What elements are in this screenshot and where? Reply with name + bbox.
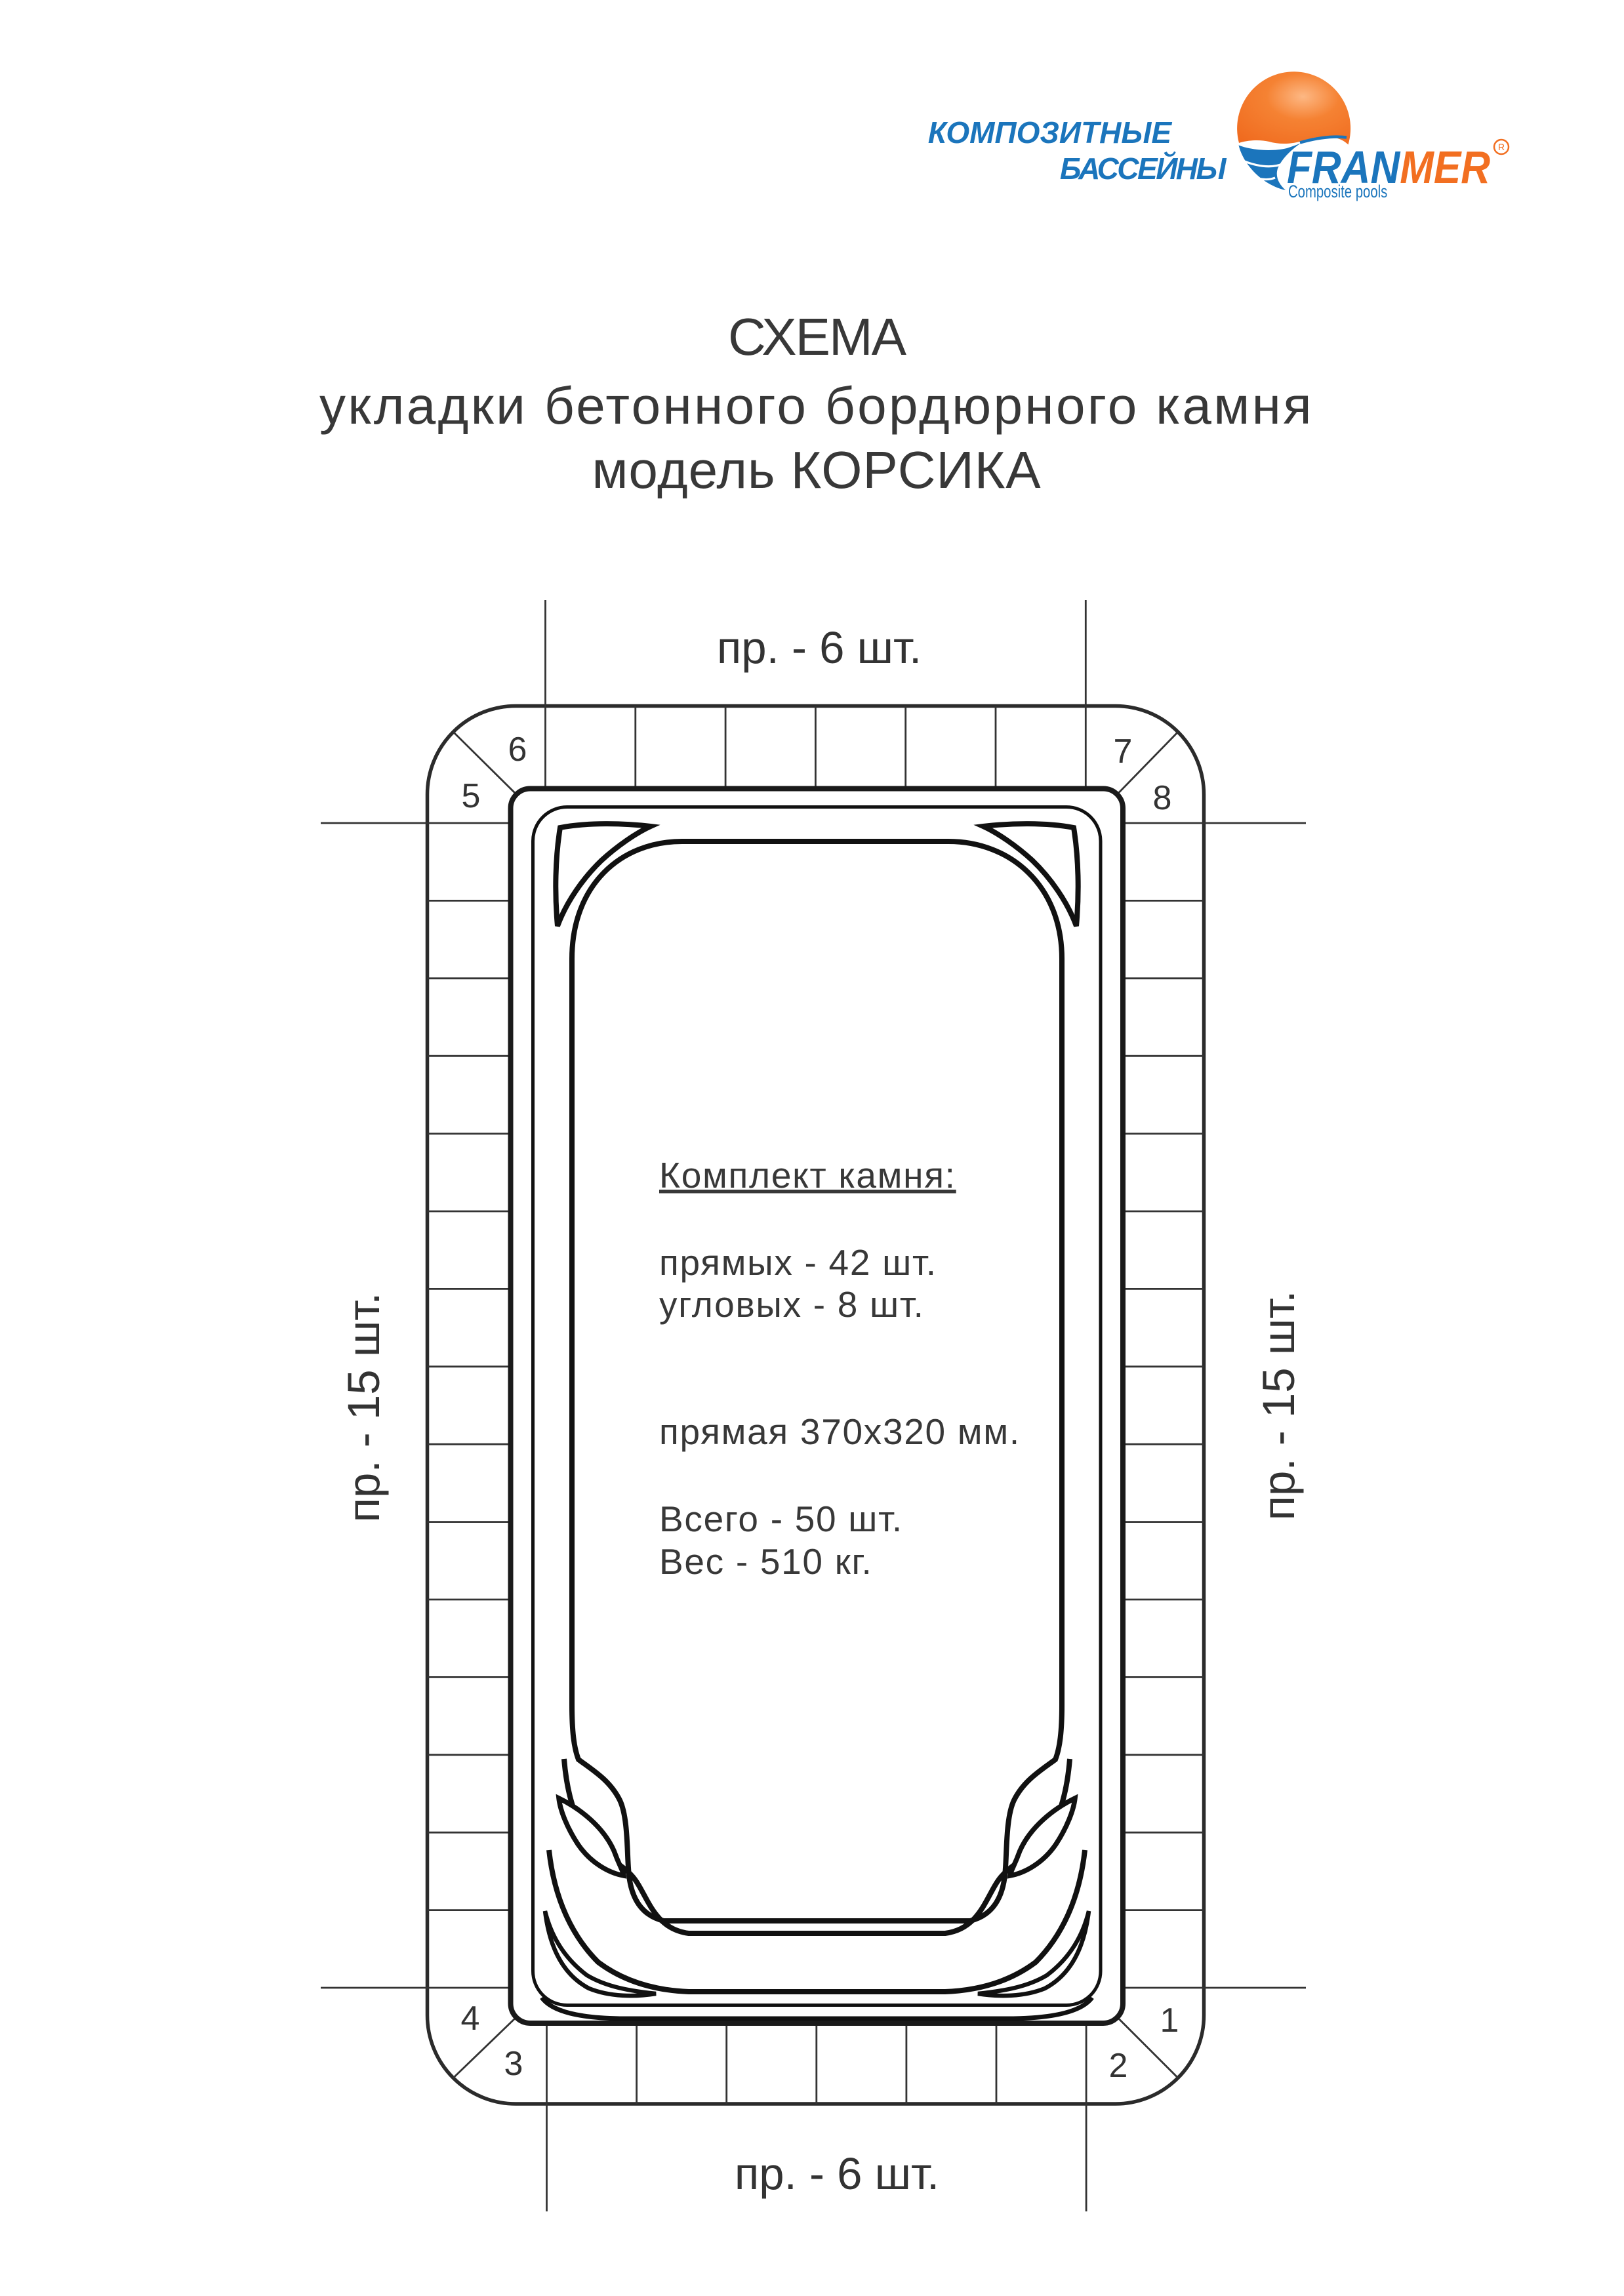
svg-text:Всего - 50 шт.: Всего - 50 шт.: [659, 1499, 903, 1539]
svg-text:пр. - 6 шт.: пр. - 6 шт.: [717, 622, 922, 673]
svg-text:прямых - 42 шт.: прямых - 42 шт.: [659, 1242, 937, 1283]
svg-text:3: 3: [504, 2045, 523, 2083]
svg-text:7: 7: [1114, 733, 1133, 771]
svg-text:4: 4: [461, 2000, 480, 2038]
svg-text:укладки бетонного бордюрного к: укладки бетонного бордюрного камня: [319, 376, 1314, 435]
svg-text:угловых - 8 шт.: угловых - 8 шт.: [659, 1284, 925, 1325]
svg-text:КОМПОЗИТНЫЕ: КОМПОЗИТНЫЕ: [928, 115, 1173, 150]
svg-text:R: R: [1498, 142, 1505, 152]
svg-text:пр. - 6 шт.: пр. - 6 шт.: [735, 2148, 939, 2199]
svg-text:пр. - 15 шт.: пр. - 15 шт.: [338, 1293, 389, 1523]
svg-text:2: 2: [1109, 2047, 1128, 2085]
svg-text:пр. - 15 шт.: пр. - 15 шт.: [1253, 1291, 1304, 1521]
svg-text:БАССЕЙНЫ: БАССЕЙНЫ: [1060, 151, 1227, 186]
svg-text:модель КОРСИКА: модель КОРСИКА: [592, 441, 1041, 499]
svg-text:Комплект камня:: Комплект камня:: [659, 1155, 956, 1196]
svg-text:6: 6: [508, 731, 527, 769]
svg-text:СХЕМА: СХЕМА: [728, 308, 907, 366]
svg-text:Вес - 510 кг.: Вес - 510 кг.: [659, 1541, 873, 1582]
svg-text:1: 1: [1160, 2002, 1179, 2040]
svg-text:5: 5: [462, 777, 481, 815]
svg-text:Composite pools: Composite pools: [1288, 182, 1387, 202]
svg-text:прямая 370х320 мм.: прямая 370х320 мм.: [659, 1411, 1021, 1452]
svg-text:8: 8: [1153, 779, 1172, 817]
